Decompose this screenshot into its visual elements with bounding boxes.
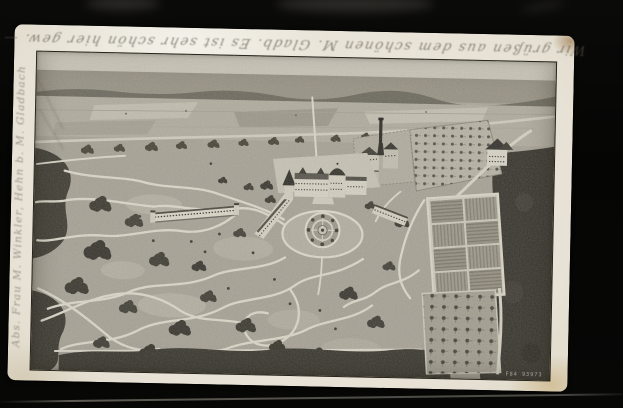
printed-publisher-mark: F84 93973	[505, 372, 542, 379]
postcard: Wir grüßen aus dem schönen M. Gladb. Es …	[7, 24, 574, 392]
scan-scratch-line	[0, 393, 623, 402]
scanned-postcard-background: Wir grüßen aus dem schönen M. Gladb. Es …	[0, 0, 623, 408]
scanner-glare-patch	[86, 0, 160, 10]
scanner-glare-patch	[520, 0, 567, 14]
aerial-view-scene	[31, 52, 557, 381]
photo-plate: F84 93973	[30, 51, 558, 382]
halftone-grain	[31, 52, 557, 381]
handwritten-inscription-left: Abs. Frau M. Winkler, Hehn b. M. Gladbac…	[10, 97, 31, 347]
scanner-glare-patch	[276, 0, 434, 12]
